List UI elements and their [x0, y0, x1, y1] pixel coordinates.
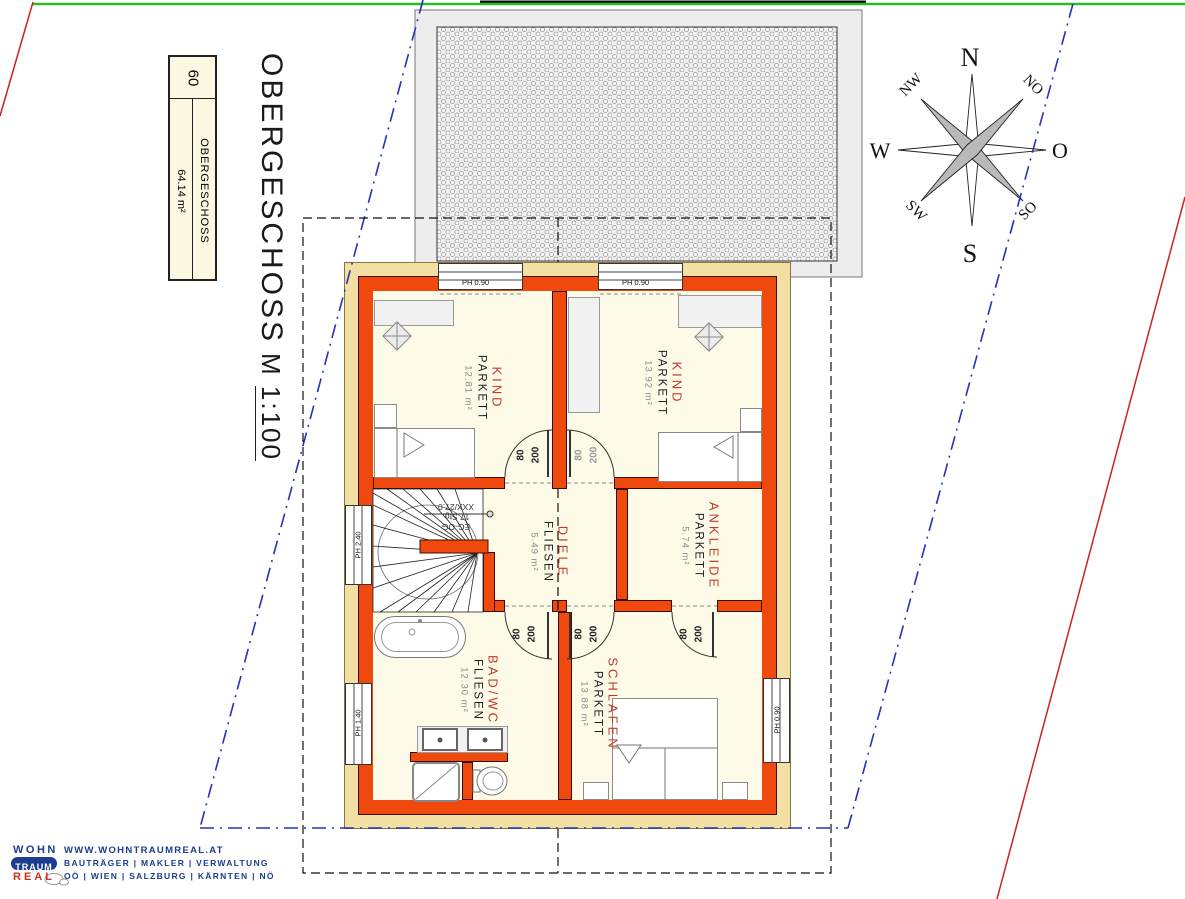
room-name: ANKLEIDE [705, 502, 721, 590]
room-name: BAD/WC [484, 655, 500, 725]
room-name: KIND [668, 350, 684, 416]
title-box-area: 64.14 m² [175, 169, 187, 212]
room-area: 12.30 m² [458, 655, 470, 725]
room-name: DIELE [554, 521, 570, 583]
title-box-name: OBERGESCHOSS [198, 138, 210, 244]
scale-label: M 1:100 [252, 353, 286, 503]
title-box-divider [192, 99, 193, 281]
door-width: 80 [512, 628, 523, 639]
floorplan-page: { "page": { "big_title": "OBERGESCHOSS",… [0, 0, 1185, 899]
door-height: 200 [527, 626, 538, 643]
room-material: FLIESEN [540, 521, 554, 583]
room-area: 5.74 m² [679, 502, 691, 590]
footer-website-link[interactable]: WWW.WOHNTRAUMREAL.AT [64, 845, 224, 856]
window-label: PH 1.40 [354, 709, 363, 736]
window-label: PH 0.90 [622, 278, 649, 287]
room-label-diele: DIELE FLIESEN 5.49 m² [528, 521, 571, 583]
room-label-schlafen: SCHLAFEN PARKETT 13.88 m² [578, 657, 621, 750]
logo-real: REAL [13, 871, 55, 883]
door-height: 200 [589, 626, 600, 643]
title-box: 60 64.14 m² OBERGESCHOSS [168, 55, 217, 281]
door-width: 80 [516, 449, 527, 460]
room-area: 13.92 m² [642, 350, 654, 416]
room-label-kind1: KIND PARKETT 12.81 m² [462, 355, 505, 421]
logo-traum-pill: TRAUM [11, 857, 57, 870]
stair-dims: XXX/27.0 [438, 502, 474, 512]
toilet [473, 767, 507, 795]
page-title: OBERGESCHOSS [252, 53, 288, 398]
stair-landing-wall [420, 540, 488, 553]
window-label: PH 0.90 [773, 706, 782, 733]
door-height: 200 [531, 447, 542, 464]
door-height: 200 [589, 447, 600, 464]
room-material: FLIESEN [470, 655, 484, 725]
door-height: 200 [694, 626, 705, 643]
stair-run: EG-OG [438, 522, 474, 532]
footer-regions: OÖ | WIEN | SALZBURG | KÄRNTEN | NÖ [64, 871, 275, 881]
stair-steps: 17 Stg. [438, 512, 474, 522]
window-label: PH 2.40 [354, 531, 363, 558]
room-material: PARKETT [654, 350, 668, 416]
door-width: 80 [574, 449, 585, 460]
boundary-line-red-left [0, 2, 33, 116]
scale-prefix: M [256, 353, 286, 386]
room-label-kind2: KIND PARKETT 13.92 m² [642, 350, 685, 416]
room-label-ankleide: ANKLEIDE PARKETT 5.74 m² [679, 502, 722, 590]
room-material: PARKETT [691, 502, 705, 590]
room-name: KIND [488, 355, 504, 421]
staircase [373, 489, 493, 612]
desk-chair [695, 323, 723, 351]
room-area: 12.81 m² [462, 355, 474, 421]
room-material: PARKETT [474, 355, 488, 421]
scale-value: 1:100 [255, 386, 286, 461]
window-label: PH 0.90 [462, 278, 489, 287]
room-material: PARKETT [590, 657, 604, 750]
title-box-number: 60 [184, 69, 201, 86]
room-area: 13.88 m² [578, 657, 590, 750]
room-name: SCHLAFEN [604, 657, 620, 750]
stair-annotation: EG-OG 17 Stg. XXX/27.0 [438, 502, 474, 532]
setback-line-blue [200, 0, 1074, 828]
door-width: 80 [679, 628, 690, 639]
footer-services: BAUTRÄGER | MAKLER | VERWALTUNG [64, 858, 269, 868]
desk-chair [383, 322, 411, 350]
room-area: 5.49 m² [528, 521, 540, 583]
room-label-bad: BAD/WC FLIESEN 12.30 m² [458, 655, 501, 725]
title-box-number-cell: 60 [170, 57, 215, 99]
logo-wohn: WOHN [13, 844, 58, 856]
boundary-line-red-right [997, 197, 1185, 899]
stair-marker [487, 511, 493, 517]
door-width: 80 [574, 628, 585, 639]
